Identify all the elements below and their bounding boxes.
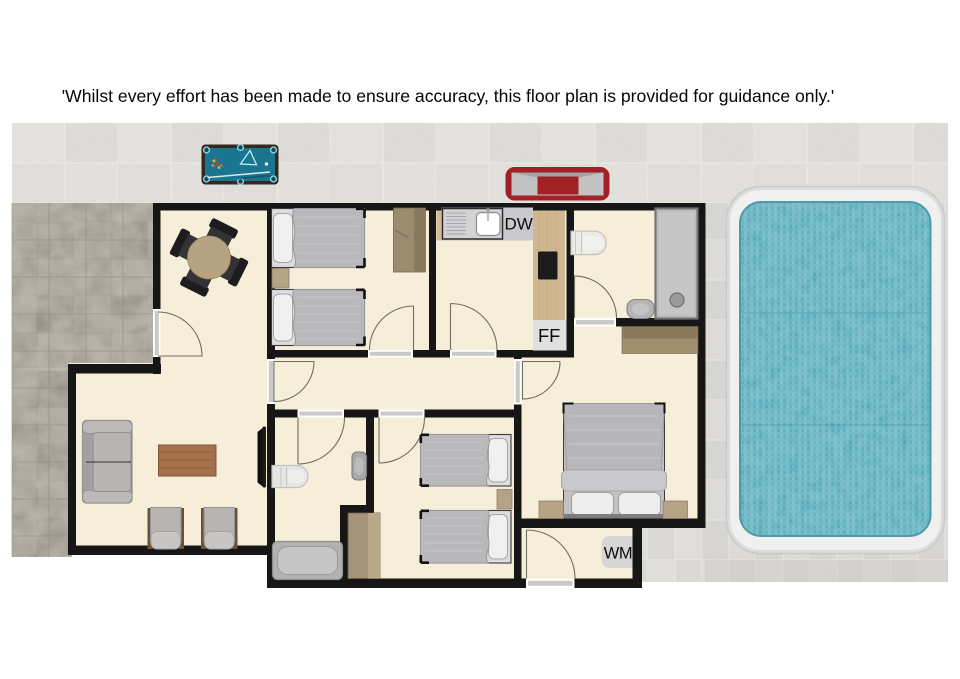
svg-text:WM: WM: [604, 545, 632, 563]
svg-text:DW: DW: [505, 215, 533, 234]
svg-text:'Whilst every effort has been: 'Whilst every effort has been made to en…: [62, 86, 834, 106]
svg-text:FF: FF: [538, 325, 560, 346]
